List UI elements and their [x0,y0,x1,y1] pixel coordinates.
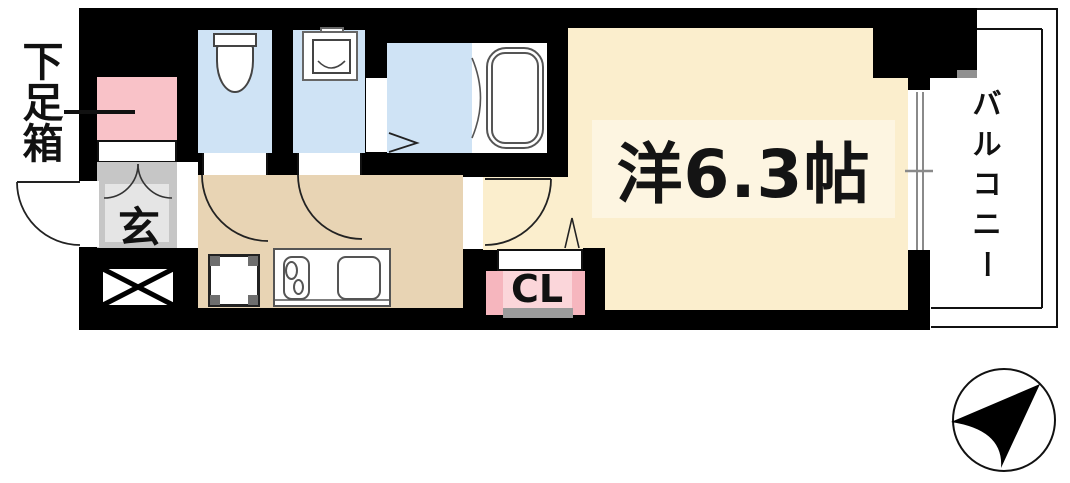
burner-icon [285,261,298,280]
bathroom-door-opening [366,78,387,152]
toilet-door-opening [202,153,268,175]
main-room-label: 洋6.3帖 [617,121,871,217]
wall-notch-over-main [873,28,908,78]
sink-icon [337,256,381,300]
drain-block [957,70,977,78]
bathroom [387,43,472,153]
wall-top-right-chunk [930,8,977,78]
washer-door-opening [297,153,362,175]
entrance-door-opening [79,181,99,247]
main-room-door-opening [463,177,483,249]
wall-beside-closet [583,248,605,310]
bathtub-icon-inner [491,52,539,144]
shoe-box-label: 下足箱 [20,42,66,165]
entrance-door-arc [17,182,80,245]
fridge-corner-mark [248,295,258,305]
shoe-cabinet-front [97,140,177,163]
burner-icon [293,279,304,295]
fridge-space-icon [208,254,260,307]
balcony-label: バルコニー [958,84,1016,284]
compass-icon [951,369,1055,471]
main-room-alcove [483,177,568,250]
fridge-corner-mark [210,295,220,305]
window-opening [908,90,930,250]
genkan-label: 玄 [116,194,162,255]
floor-plan: 下足箱 玄 洋6.3帖 CL バルコニー [0,0,1070,483]
genkan-step-strip [177,162,198,248]
closet-label: CL [494,268,580,310]
fridge-corner-mark [248,256,258,266]
main-room-label-box: 洋6.3帖 [592,120,895,218]
washer-drum-icon [312,39,351,74]
fridge-corner-mark [210,256,220,266]
shoe-cabinet [97,77,177,140]
pipe-space-box [100,266,176,308]
